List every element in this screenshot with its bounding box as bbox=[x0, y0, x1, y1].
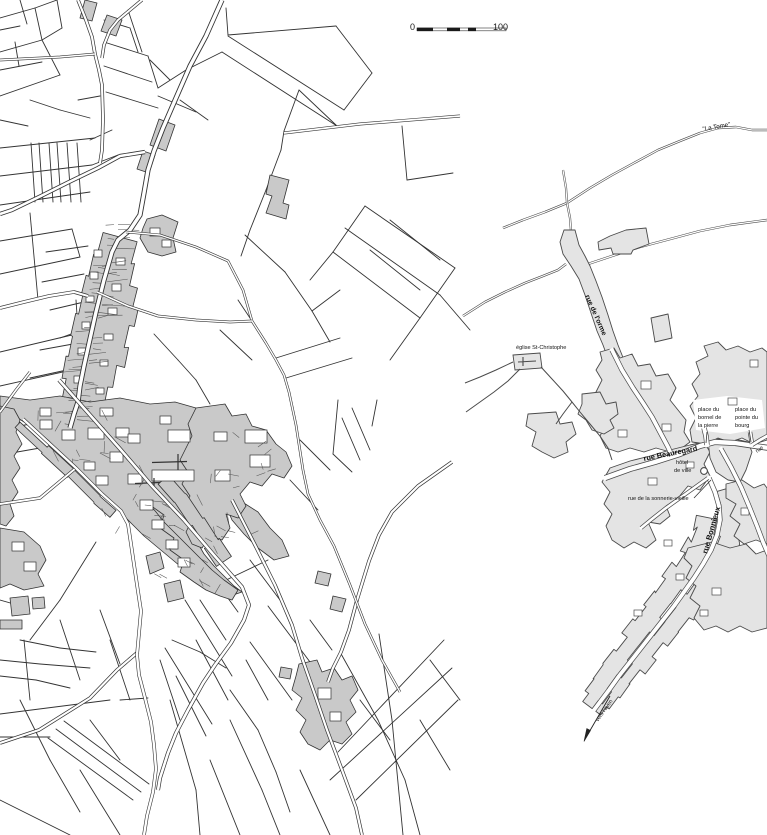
svg-text:hôtel: hôtel bbox=[676, 460, 688, 466]
svg-text:0: 0 bbox=[410, 22, 415, 32]
svg-text:rue de la sonnerie-vieille: rue de la sonnerie-vieille bbox=[628, 496, 689, 502]
svg-text:de ville: de ville bbox=[674, 468, 691, 474]
svg-text:église St-Christophe: église St-Christophe bbox=[516, 345, 566, 351]
svg-text:la pierre: la pierre bbox=[698, 423, 718, 429]
svg-text:bourg: bourg bbox=[735, 423, 749, 429]
svg-text:place du: place du bbox=[698, 407, 719, 413]
svg-text:bornel de: bornel de bbox=[698, 415, 721, 421]
svg-text:place du: place du bbox=[735, 407, 756, 413]
svg-text:100: 100 bbox=[493, 22, 508, 32]
svg-text:pointe du: pointe du bbox=[735, 415, 758, 421]
